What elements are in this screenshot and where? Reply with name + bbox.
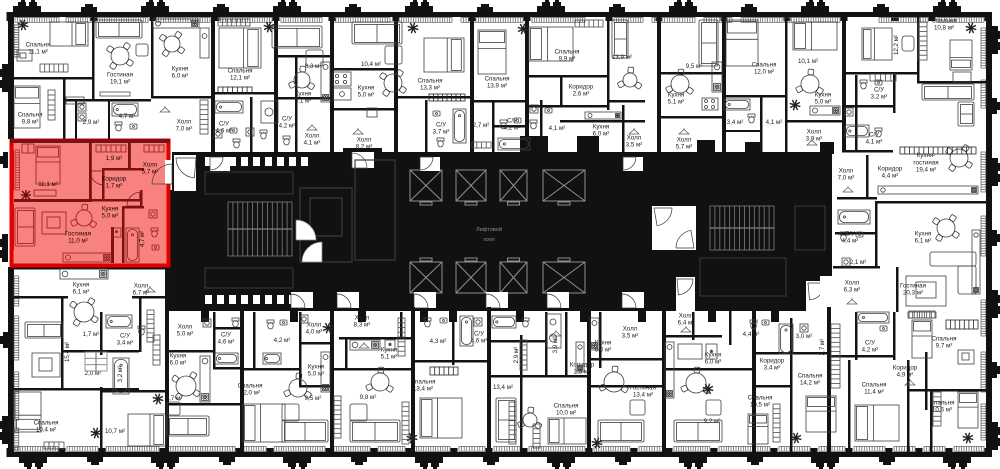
svg-text:Спальня12,1 м²: Спальня12,1 м²: [228, 68, 253, 82]
svg-text:4,1 м²: 4,1 м²: [766, 119, 783, 126]
svg-text:9,8 м²: 9,8 м²: [360, 394, 377, 401]
svg-text:Спальня12,0 м²: Спальня12,0 м²: [238, 383, 263, 397]
svg-text:13,4 м²: 13,4 м²: [493, 384, 513, 391]
svg-text:11,1 м²: 11,1 м²: [38, 181, 58, 188]
svg-text:3,4 м²: 3,4 м²: [727, 119, 744, 126]
svg-text:Гостиная19,1 м²: Гостиная19,1 м²: [107, 72, 133, 86]
svg-text:*: *: [389, 343, 392, 350]
svg-text:10,4 м²: 10,4 м²: [361, 61, 381, 68]
svg-text:4,4 м²: 4,4 м²: [743, 331, 760, 338]
svg-text:1,9 м²: 1,9 м²: [106, 155, 123, 162]
svg-text:Кухня6,0 м²: Кухня6,0 м²: [170, 353, 187, 367]
svg-text:2,1 м²: 2,1 м²: [850, 259, 867, 266]
svg-text:8,7 м²: 8,7 м²: [166, 395, 183, 402]
svg-text:4,7 м²: 4,7 м²: [119, 113, 136, 120]
svg-text:Спальня10,4 м²: Спальня10,4 м²: [34, 420, 59, 434]
svg-text:Кухня5,0 м²: Кухня5,0 м²: [358, 85, 375, 99]
svg-text:15,4 м²: 15,4 м²: [64, 342, 71, 362]
svg-text:Холл8,3 м²: Холл8,3 м²: [354, 315, 371, 329]
svg-text:Кухня5,0 м²: Кухня5,0 м²: [815, 92, 832, 106]
svg-text:Холл6,3 м²: Холл6,3 м²: [844, 280, 861, 294]
svg-text:3,0 м²: 3,0 м²: [796, 333, 813, 340]
svg-text:Спальня13,4 м²: Спальня13,4 м²: [411, 379, 436, 393]
svg-text:Лифтовой: Лифтовой: [476, 226, 502, 233]
svg-text:Холл6,4 м²: Холл6,4 м²: [678, 313, 695, 327]
svg-text:Спальня13,3 м²: Спальня13,3 м²: [418, 78, 443, 92]
svg-text:Кухня6,0 м²: Кухня6,0 м²: [593, 124, 610, 138]
svg-text:Холл3,5 м²: Холл3,5 м²: [622, 326, 639, 340]
svg-text:2,9 м²: 2,9 м²: [83, 119, 100, 126]
svg-text:9,5 м²: 9,5 м²: [686, 63, 703, 70]
svg-text:Кухня6,1 м²: Кухня6,1 м²: [915, 231, 932, 245]
svg-text:Холл5,0 м²: Холл5,0 м²: [177, 324, 194, 338]
svg-text:Кухня6,1 м²: Кухня6,1 м²: [73, 282, 90, 296]
svg-text:Кухня6,1 м²: Кухня6,1 м²: [295, 91, 312, 105]
svg-text:3,2 м²: 3,2 м²: [117, 366, 124, 383]
svg-text:Холл3,5 м²: Холл3,5 м²: [626, 135, 643, 149]
svg-text:Холл7,0 м²: Холл7,0 м²: [838, 168, 855, 182]
svg-text:Спальня10,5 м²: Спальня10,5 м²: [748, 395, 773, 409]
svg-text:1,7 м²: 1,7 м²: [83, 331, 100, 338]
svg-text:12,2 м²: 12,2 м²: [893, 35, 900, 55]
svg-text:4,2 м²: 4,2 м²: [274, 337, 291, 344]
svg-text:9,2 м²: 9,2 м²: [704, 418, 721, 425]
svg-text:Кухня5,1 м²: Кухня5,1 м²: [668, 92, 685, 106]
svg-text:Гостиная20,3 м²: Гостиная20,3 м²: [900, 283, 926, 297]
svg-text:3,9 м²: 3,9 м²: [552, 337, 559, 354]
svg-text:Кухня6,0 м²: Кухня6,0 м²: [172, 66, 189, 80]
svg-text:Гостиная11,0 м²: Гостиная11,0 м²: [65, 231, 91, 245]
svg-text:*: *: [710, 350, 713, 357]
svg-text:Холл7,0 м²: Холл7,0 м²: [176, 119, 193, 133]
svg-text:Холл3,9 м²: Холл3,9 м²: [806, 129, 823, 143]
svg-text:2,7 м²: 2,7 м²: [473, 122, 490, 129]
svg-text:Холл6,7 м²: Холл6,7 м²: [133, 283, 150, 297]
svg-text:Спальня12,0 м²: Спальня12,0 м²: [752, 62, 777, 76]
svg-text:Спальня14,2 м²: Спальня14,2 м²: [798, 373, 823, 387]
svg-text:2,7 м²: 2,7 м²: [819, 339, 826, 356]
svg-text:13,9 м²: 13,9 м²: [612, 54, 632, 61]
svg-text:Холл5,7 м²: Холл5,7 м²: [142, 162, 159, 176]
svg-text:4,1 м²: 4,1 м²: [549, 125, 566, 132]
svg-text:Спальня13,9 м²: Спальня13,9 м²: [485, 76, 510, 90]
svg-text:8,3 м²: 8,3 м²: [305, 63, 322, 70]
svg-text:10,1 м²: 10,1 м²: [798, 58, 818, 65]
svg-text:2,9 м²: 2,9 м²: [513, 347, 520, 364]
svg-text:холл: холл: [483, 237, 494, 243]
svg-text:10,7 м²: 10,7 м²: [105, 428, 125, 435]
svg-text:Кухня5,0 м²: Кухня5,0 м²: [102, 206, 119, 220]
svg-text:Холл4,0 м²: Холл4,0 м²: [306, 322, 323, 336]
svg-text:Спальня10,0 м²: Спальня10,0 м²: [554, 403, 579, 417]
svg-text:Спальня11,1 м²: Спальня11,1 м²: [26, 42, 51, 56]
svg-text:Холл8,2 м²: Холл8,2 м²: [356, 137, 373, 151]
svg-text:Холл4,1 м²: Холл4,1 м²: [304, 133, 321, 147]
svg-text:4,7 м²: 4,7 м²: [140, 231, 146, 247]
svg-text:Спальня10,8 м²: Спальня10,8 м²: [932, 18, 957, 32]
svg-text:Холл5,7 м²: Холл5,7 м²: [676, 137, 693, 151]
svg-text:9,5 м²: 9,5 м²: [305, 395, 322, 402]
svg-text:Кухня-гостиная19,4 м²: Кухня-гостиная19,4 м²: [913, 152, 938, 173]
svg-text:Кухня5,0 м²: Кухня5,0 м²: [308, 364, 325, 378]
svg-text:4,3 м²: 4,3 м²: [430, 338, 447, 345]
svg-text:Гостиная13,4 м²: Гостиная13,4 м²: [630, 385, 656, 399]
svg-text:Спальня11,4 м²: Спальня11,4 м²: [862, 382, 887, 396]
